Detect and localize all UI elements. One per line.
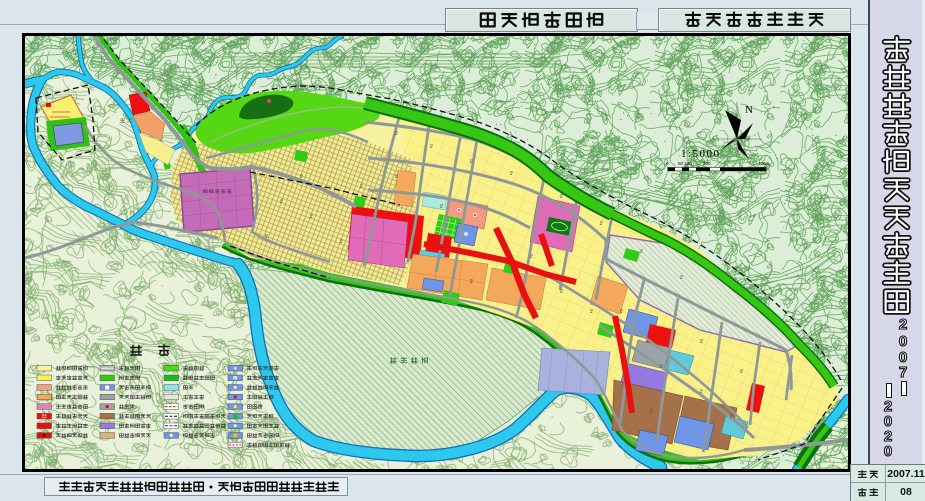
svg-text:200: 200 (703, 161, 711, 166)
svg-text:50 100: 50 100 (678, 161, 692, 166)
svg-text:N: N (745, 104, 753, 116)
svg-text:1:5000: 1:5000 (681, 148, 721, 160)
svg-text:400m: 400m (758, 161, 770, 166)
